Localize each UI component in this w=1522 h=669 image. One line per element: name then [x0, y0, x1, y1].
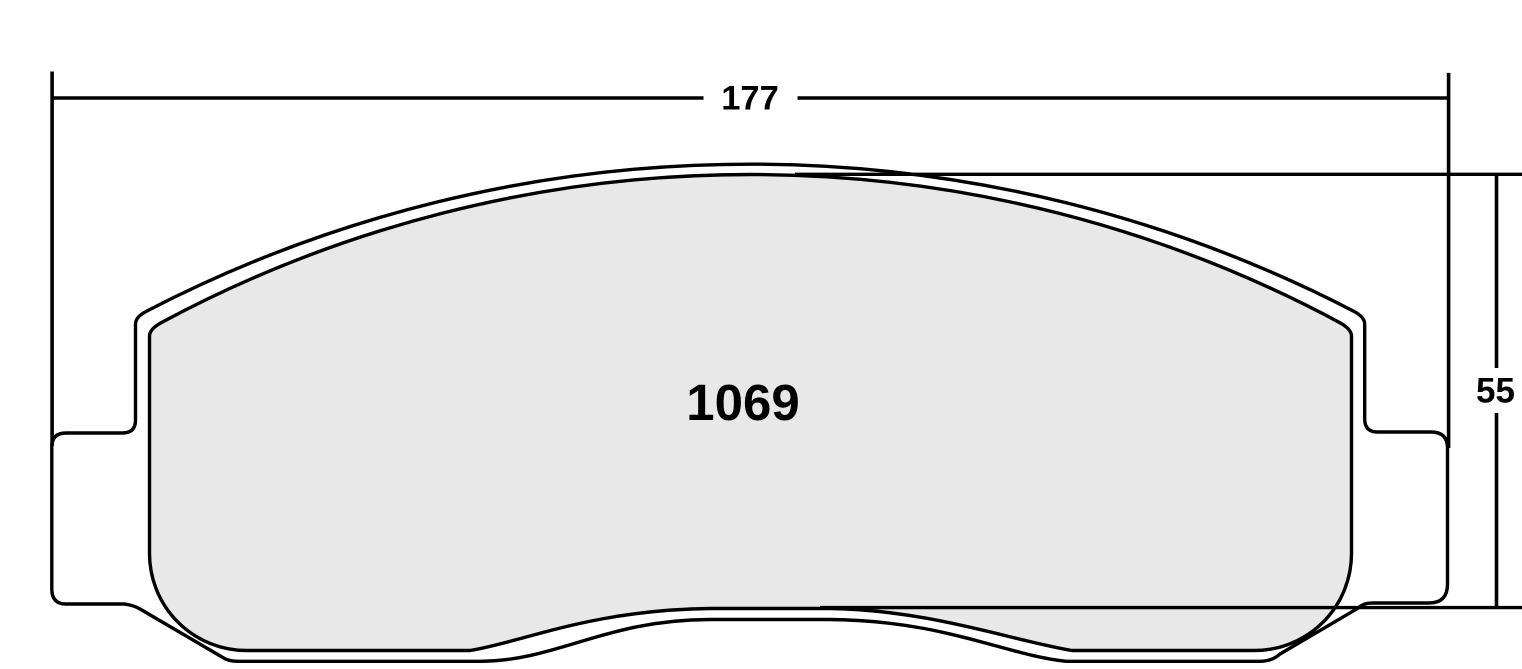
- svg-text:177: 177: [721, 80, 779, 118]
- svg-text:1069: 1069: [686, 374, 799, 431]
- svg-text:55: 55: [1476, 372, 1515, 411]
